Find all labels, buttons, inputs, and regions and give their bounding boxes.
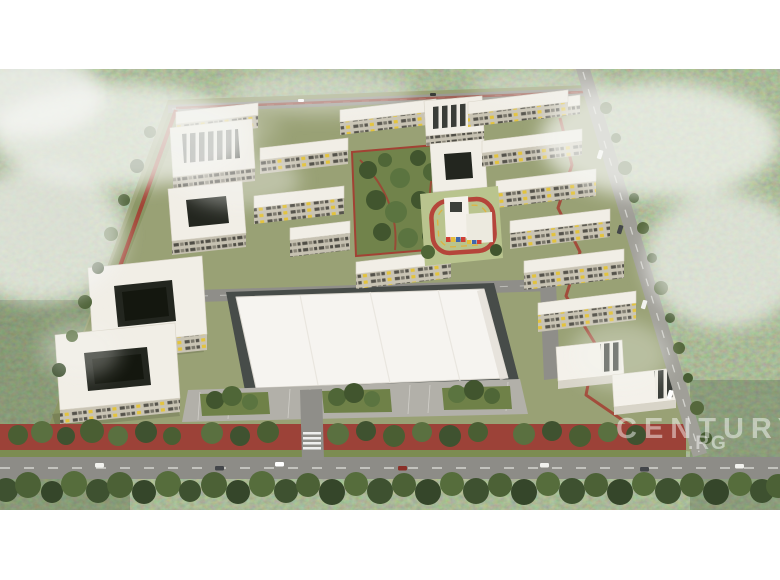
kindergarten-tree xyxy=(490,244,502,256)
kindergarten xyxy=(420,186,503,266)
courtyard-depth xyxy=(122,287,169,321)
scene-canvas xyxy=(0,69,780,510)
rendering-page: CENTURY 21 .RG xyxy=(0,0,780,580)
courtyard-hole xyxy=(444,152,473,180)
aerial-rendering: CENTURY 21 .RG xyxy=(0,69,780,510)
rooftop-units xyxy=(432,103,473,129)
kindergarten-tree xyxy=(421,245,435,259)
top-white-margin xyxy=(0,0,780,69)
kindergarten-wing xyxy=(466,212,493,244)
kindergarten-roof-unit xyxy=(450,202,462,212)
bottom-white-margin xyxy=(0,510,780,580)
green-verge xyxy=(0,450,686,458)
